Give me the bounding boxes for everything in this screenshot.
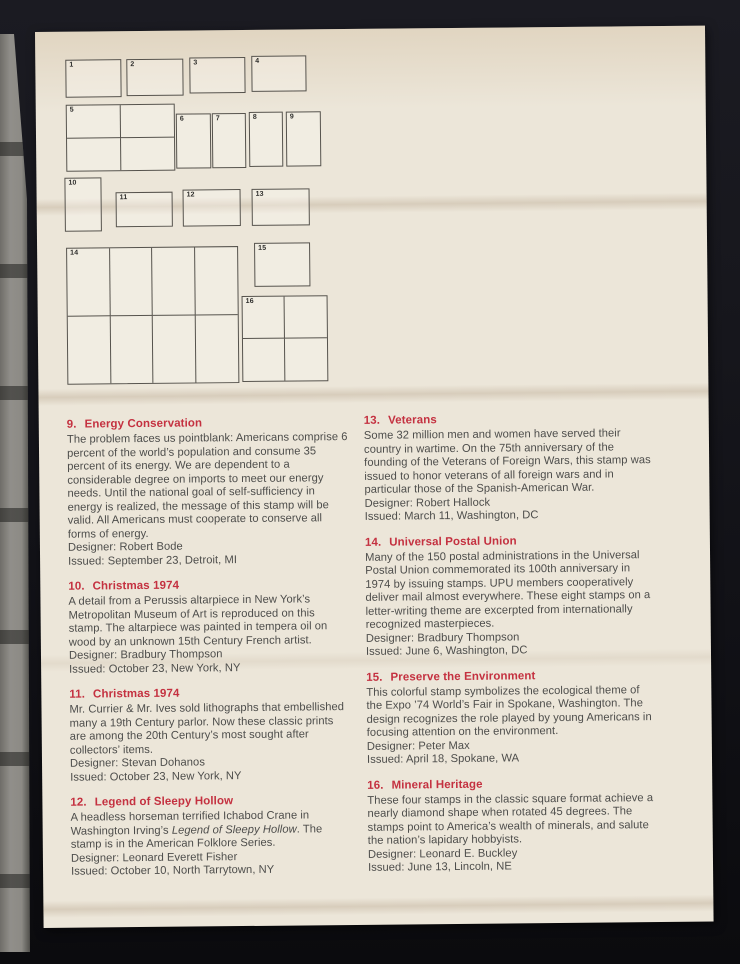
issued-line: Issued: June 13, Lincoln, NE xyxy=(368,859,660,875)
section-title: Energy Conservation xyxy=(85,417,203,430)
diagram-box-number: 10 xyxy=(68,180,76,187)
issued-line: Issued: April 18, Spokane, WA xyxy=(367,751,659,767)
issued-line: Issued: October 10, North Tarrytown, NY xyxy=(71,863,354,879)
diagram-box-number: 9 xyxy=(290,114,294,121)
body-text: These four stamps in the classic square … xyxy=(367,792,653,847)
section-body: These four stamps in the classic square … xyxy=(367,792,660,849)
diagram-box-number: 2 xyxy=(130,61,134,68)
diagram-cell xyxy=(67,138,121,171)
section-heading: 16.Mineral Heritage xyxy=(367,777,659,792)
section-heading: 13.Veterans xyxy=(364,412,656,427)
diagram-cell xyxy=(190,58,244,93)
diagram-cell xyxy=(285,296,327,338)
book-spine-edge xyxy=(0,34,30,952)
diagram-box-5: 5 xyxy=(66,104,176,172)
booklet-page: 12345678910111213141516 9.Energy Conserv… xyxy=(35,26,714,928)
photo-scene: 12345678910111213141516 9.Energy Conserv… xyxy=(0,0,740,964)
stamp-description-9: 9.Energy ConservationThe problem faces u… xyxy=(67,416,351,569)
body-text: The problem faces us pointblank: America… xyxy=(67,431,348,540)
page-shadow-band xyxy=(43,895,713,918)
diagram-box-9: 9 xyxy=(286,111,322,166)
diagram-box-10: 10 xyxy=(64,177,102,231)
diagram-cell xyxy=(67,105,121,138)
issued-line: Issued: October 23, New York, NY xyxy=(69,660,352,676)
diagram-box-14: 14 xyxy=(66,246,239,385)
diagram-box-number: 1 xyxy=(69,62,73,69)
diagram-cell xyxy=(110,315,153,383)
body-text: Many of the 150 postal administrations i… xyxy=(365,549,650,631)
section-heading: 10.Christmas 1974 xyxy=(68,578,351,593)
section-heading: 12.Legend of Sleepy Hollow xyxy=(70,794,353,809)
diagram-cell xyxy=(110,248,153,316)
diagram-box-7: 7 xyxy=(212,113,247,168)
diagram-box-1: 1 xyxy=(65,59,121,98)
section-heading: 14.Universal Postal Union xyxy=(365,534,657,549)
diagram-box-number: 16 xyxy=(246,298,254,305)
section-body: Mr. Currier & Mr. Ives sold lithographs … xyxy=(69,701,353,758)
diagram-cell xyxy=(195,247,238,315)
body-text: Mr. Currier & Mr. Ives sold lithographs … xyxy=(69,701,344,756)
diagram-box-number: 7 xyxy=(216,115,220,122)
right-text-column: 13.VeteransSome 32 million men and women… xyxy=(364,412,661,887)
section-title: Universal Postal Union xyxy=(389,535,517,548)
italic-text: Legend of Sleepy Hollow xyxy=(172,823,297,836)
section-heading: 11.Christmas 1974 xyxy=(69,686,352,701)
body-text: This colorful stamp symbolizes the ecolo… xyxy=(366,684,651,739)
diagram-cell xyxy=(120,105,174,138)
diagram-cell xyxy=(285,338,327,380)
section-title: Mineral Heritage xyxy=(391,778,482,791)
diagram-box-number: 15 xyxy=(258,245,266,252)
diagram-box-12: 12 xyxy=(183,189,241,227)
body-text: Some 32 million men and women have serve… xyxy=(364,427,651,495)
stamp-description-11: 11.Christmas 1974Mr. Currier & Mr. Ives … xyxy=(69,686,353,785)
diagram-box-number: 11 xyxy=(120,194,128,201)
section-number: 10. xyxy=(68,581,84,593)
section-body: Many of the 150 postal administrations i… xyxy=(365,549,658,633)
section-heading: 15.Preserve the Environment xyxy=(366,669,658,684)
section-number: 12. xyxy=(70,797,86,809)
section-number: 9. xyxy=(67,419,77,431)
section-number: 14. xyxy=(365,536,381,548)
diagram-cell xyxy=(121,137,175,170)
section-heading: 9.Energy Conservation xyxy=(67,416,350,431)
section-number: 16. xyxy=(367,779,383,791)
diagram-box-number: 6 xyxy=(180,116,184,123)
section-title: Christmas 1974 xyxy=(93,688,180,701)
section-number: 15. xyxy=(366,671,382,683)
section-title: Preserve the Environment xyxy=(390,670,535,683)
diagram-box-16: 16 xyxy=(242,295,329,382)
diagram-cell xyxy=(243,339,285,381)
diagram-box-number: 4 xyxy=(255,58,259,65)
left-text-column: 9.Energy ConservationThe problem faces u… xyxy=(67,416,355,891)
diagram-box-15: 15 xyxy=(254,242,310,287)
diagram-cell xyxy=(152,247,195,315)
diagram-cell xyxy=(67,248,110,316)
stamp-description-10: 10.Christmas 1974A detail from a Perussi… xyxy=(68,578,352,677)
stamp-position-diagram: 12345678910111213141516 xyxy=(35,26,709,432)
diagram-box-3: 3 xyxy=(189,57,245,94)
diagram-cell xyxy=(127,60,182,96)
diagram-box-6: 6 xyxy=(176,113,212,168)
diagram-box-2: 2 xyxy=(126,59,183,97)
diagram-box-8: 8 xyxy=(249,112,284,167)
issued-line: Issued: September 23, Detroit, MI xyxy=(68,552,351,568)
section-body: Some 32 million men and women have serve… xyxy=(364,427,657,497)
stamp-description-12: 12.Legend of Sleepy HollowA headless hor… xyxy=(70,794,354,879)
diagram-box-number: 14 xyxy=(70,250,78,257)
diagram-box-number: 8 xyxy=(253,114,257,121)
diagram-box-4: 4 xyxy=(251,55,306,92)
diagram-cell xyxy=(66,60,120,97)
stamp-description-15: 15.Preserve the EnvironmentThis colorful… xyxy=(366,669,659,768)
section-title: Legend of Sleepy Hollow xyxy=(95,795,234,808)
issued-line: Issued: June 6, Washington, DC xyxy=(366,643,658,659)
diagram-box-number: 13 xyxy=(256,191,264,198)
stamp-description-14: 14.Universal Postal UnionMany of the 150… xyxy=(365,534,658,660)
diagram-cell xyxy=(68,316,111,384)
diagram-box-number: 3 xyxy=(193,59,197,66)
section-body: A detail from a Perussis altarpiece in N… xyxy=(68,593,352,650)
section-title: Veterans xyxy=(388,414,437,426)
diagram-cell xyxy=(195,315,238,383)
diagram-box-number: 12 xyxy=(187,191,195,198)
section-number: 11. xyxy=(69,689,85,701)
issued-line: Issued: October 23, New York, NY xyxy=(70,768,353,784)
issued-line: Issued: March 11, Washington, DC xyxy=(365,508,657,524)
diagram-cell xyxy=(153,315,196,383)
body-text: A detail from a Perussis altarpiece in N… xyxy=(68,593,327,648)
section-title: Christmas 1974 xyxy=(93,580,180,593)
section-body: The problem faces us pointblank: America… xyxy=(67,431,351,542)
section-body: A headless horseman terrified Ichabod Cr… xyxy=(70,809,353,852)
section-number: 13. xyxy=(364,415,380,427)
stamp-description-16: 16.Mineral HeritageThese four stamps in … xyxy=(367,777,660,876)
diagram-cell xyxy=(252,56,305,91)
diagram-box-11: 11 xyxy=(116,192,173,228)
diagram-box-13: 13 xyxy=(252,188,310,226)
stamp-description-13: 13.VeteransSome 32 million men and women… xyxy=(364,412,657,524)
diagram-box-number: 5 xyxy=(70,107,74,114)
section-body: This colorful stamp symbolizes the ecolo… xyxy=(366,684,659,741)
